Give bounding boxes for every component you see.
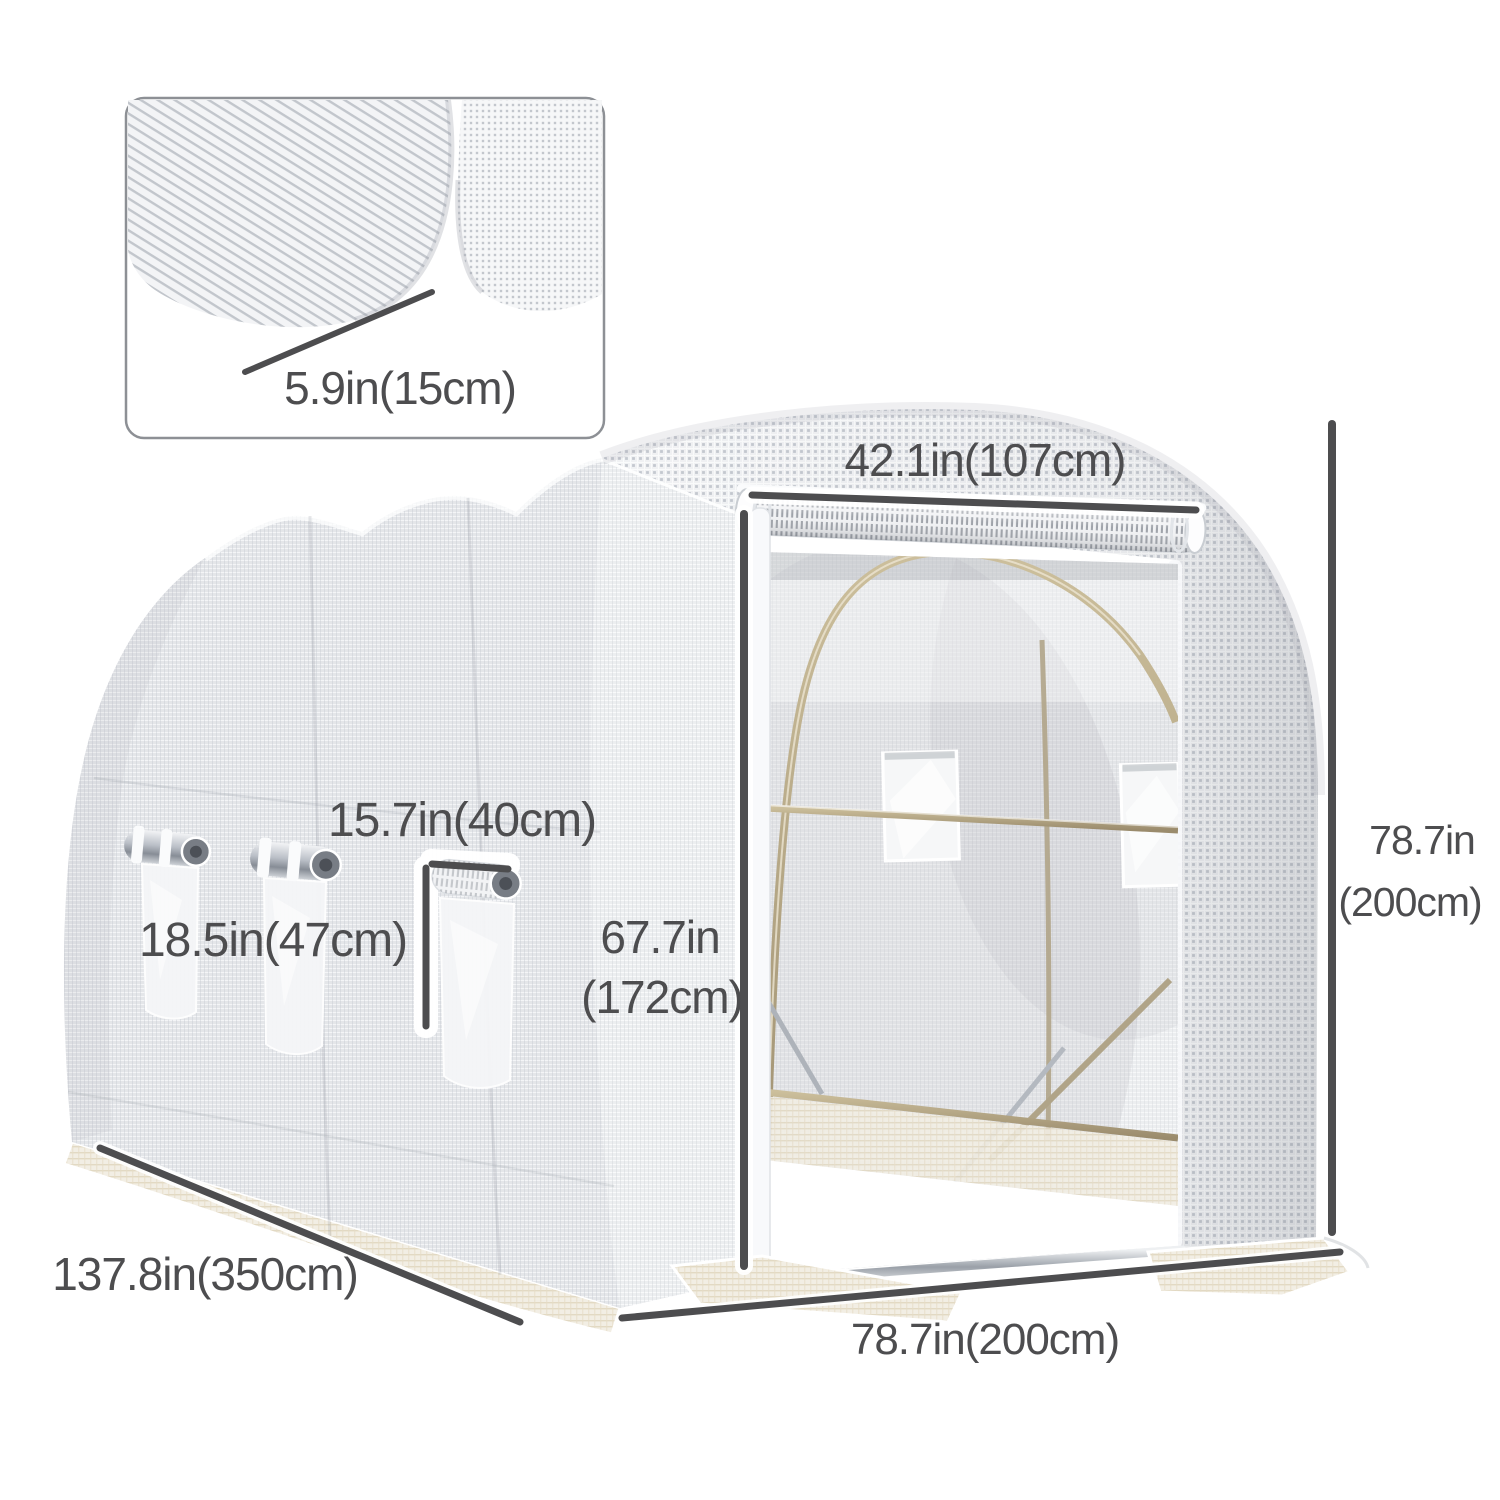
- interior-window: [883, 751, 960, 861]
- inset-fabric-dotted: [458, 100, 602, 311]
- length-dimension-label: 137.8in(350cm): [52, 1248, 358, 1300]
- roll-inner-shadow: [764, 552, 1178, 580]
- total-height-dimension-label-in: 78.7in: [1369, 817, 1475, 863]
- door-height-dimension-label-in: 67.7in: [600, 911, 719, 963]
- greenhouse-illustration: [64, 400, 1368, 1380]
- window-width-dimension-label: 15.7in(40cm): [328, 794, 596, 847]
- front-left-pillar: [590, 458, 752, 1308]
- door-width-dimension-label: 42.1in(107cm): [844, 434, 1125, 486]
- front-width-dimension-label: 78.7in(200cm): [851, 1315, 1119, 1364]
- mesh-detail-inset: 5.9in(15cm): [126, 98, 604, 438]
- product-dimension-diagram: 5.9in(15cm) 42.1in(107cm) 78.7in (200cm)…: [0, 0, 1500, 1500]
- door-height-dimension-label-cm: (172cm): [581, 971, 743, 1023]
- window-width-dimension-line: [432, 864, 508, 869]
- window-height-dimension-label: 18.5in(47cm): [139, 914, 407, 967]
- mesh-detail-dimension-label: 5.9in(15cm): [284, 362, 516, 414]
- total-height-dimension-label-cm: (200cm): [1338, 879, 1481, 925]
- greenhouse-dimension-illustration: 5.9in(15cm) 42.1in(107cm) 78.7in (200cm)…: [0, 0, 1500, 1500]
